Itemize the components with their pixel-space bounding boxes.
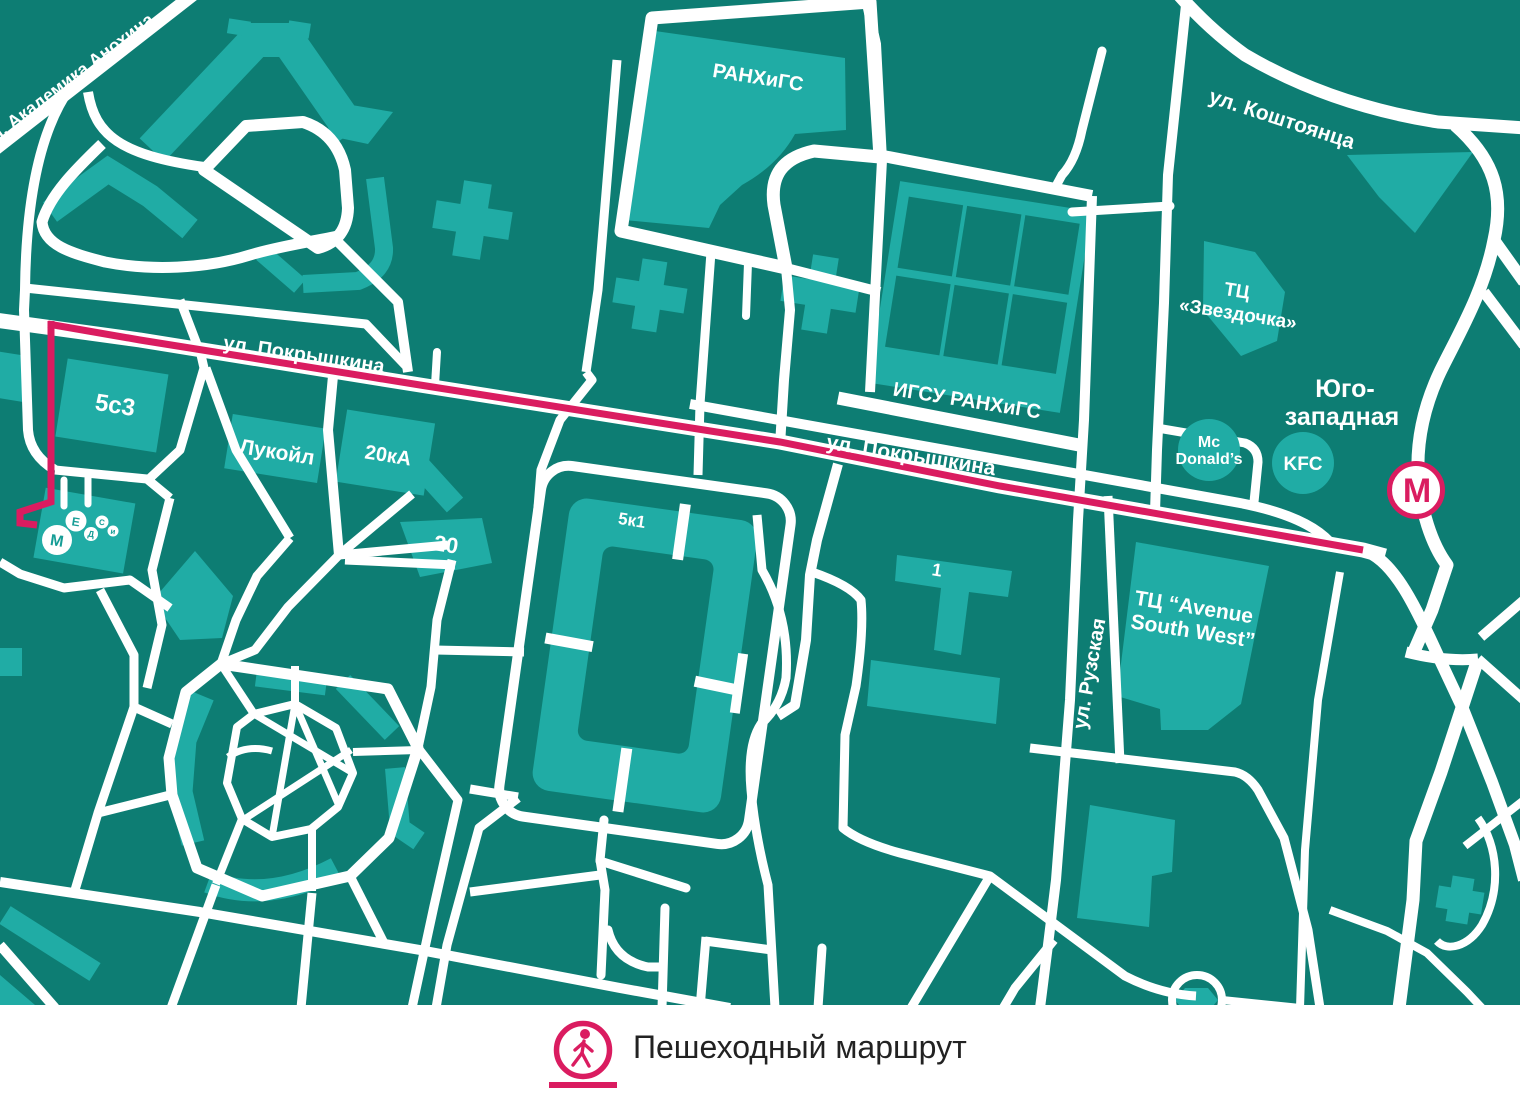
svg-text:западная: западная — [1285, 403, 1399, 431]
svg-text:20: 20 — [432, 530, 460, 559]
svg-text:М: М — [1403, 472, 1431, 510]
svg-text:Donald’s: Donald’s — [1176, 451, 1243, 468]
svg-text:KFC: KFC — [1283, 454, 1322, 475]
svg-text:Mc: Mc — [1198, 434, 1220, 451]
svg-text:Пешеходный маршрут: Пешеходный маршрут — [633, 1029, 967, 1065]
svg-text:М: М — [49, 532, 65, 551]
svg-text:Юго-: Юго- — [1315, 375, 1374, 403]
svg-text:ТЦ: ТЦ — [1223, 279, 1252, 304]
